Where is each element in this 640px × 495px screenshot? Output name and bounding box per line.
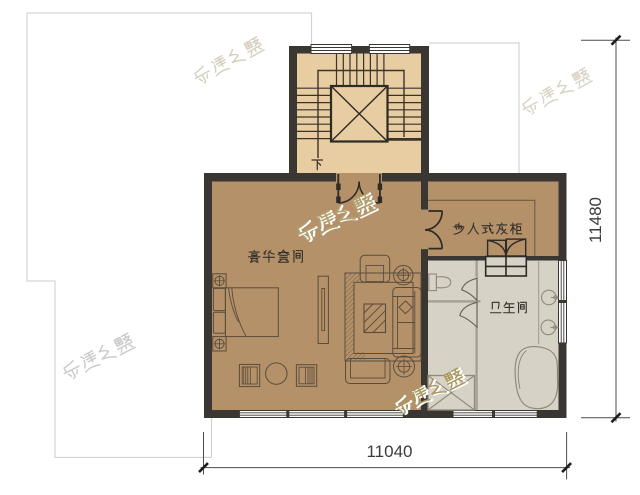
svg-text:11480: 11480	[586, 197, 605, 243]
svg-text:11040: 11040	[366, 442, 412, 461]
